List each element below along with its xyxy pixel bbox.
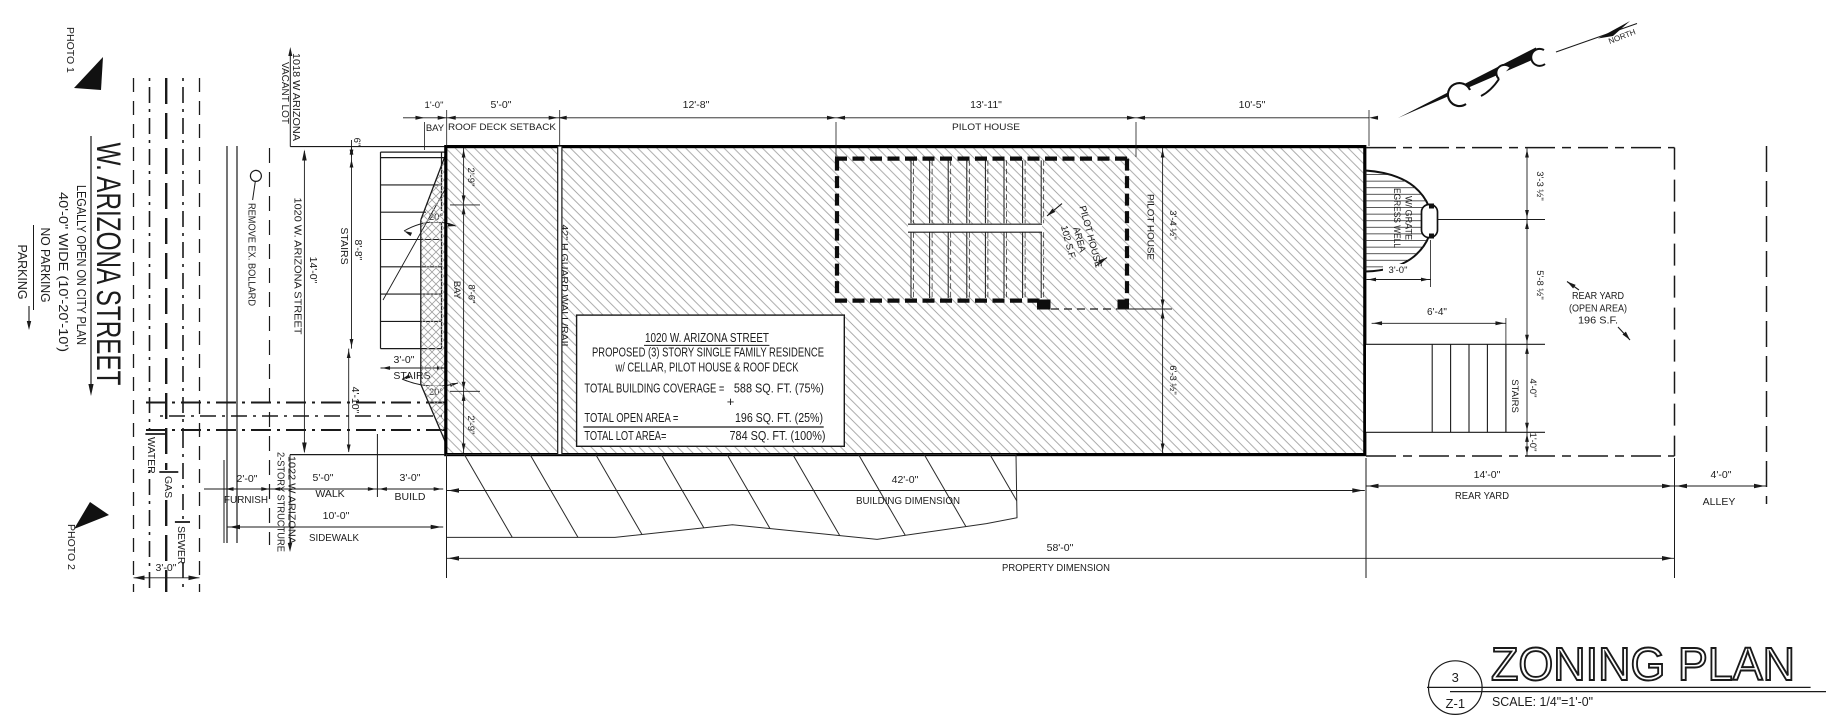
svg-text:PROPERTY DIMENSION: PROPERTY DIMENSION: [1002, 562, 1110, 574]
svg-text:SCALE: 1/4"=1'-0": SCALE: 1/4"=1'-0": [1492, 695, 1593, 709]
svg-text:2'-9": 2'-9": [465, 416, 476, 435]
svg-text:BUILD: BUILD: [395, 491, 426, 503]
svg-text:10'-5": 10'-5": [1239, 99, 1266, 111]
svg-text:588 SQ. FT. (75%): 588 SQ. FT. (75%): [734, 381, 824, 396]
svg-text:W. ARIZONA STREET: W. ARIZONA STREET: [89, 143, 127, 386]
svg-text:196 SQ. FT. (25%): 196 SQ. FT. (25%): [735, 410, 823, 425]
svg-text:13'-11": 13'-11": [970, 99, 1002, 111]
svg-text:1'-0": 1'-0": [1527, 433, 1538, 452]
svg-text:PILOT HOUSE: PILOT HOUSE: [952, 122, 1020, 133]
svg-text:BAY: BAY: [451, 281, 462, 300]
svg-text:5'-8 ½": 5'-8 ½": [1534, 270, 1545, 299]
svg-text:3'-4 ½": 3'-4 ½": [1167, 210, 1178, 239]
svg-text:2'-9": 2'-9": [465, 168, 476, 187]
svg-text:GAS: GAS: [162, 476, 174, 498]
svg-text:+: +: [727, 394, 735, 409]
svg-text:REAR YARD: REAR YARD: [1455, 490, 1509, 502]
svg-text:W/ GRATE: W/ GRATE: [1404, 196, 1414, 240]
svg-text:42" H GUARD WALL/RAIL: 42" H GUARD WALL/RAIL: [559, 225, 570, 350]
svg-text:14'-0": 14'-0": [1474, 469, 1501, 481]
svg-text:SIDEWALK: SIDEWALK: [309, 532, 359, 544]
svg-text:6'-4": 6'-4": [1427, 307, 1447, 318]
svg-text:8'-6": 8'-6": [466, 285, 477, 304]
svg-text:12'-8": 12'-8": [683, 99, 710, 111]
svg-text:3'-0": 3'-0": [394, 354, 415, 366]
svg-text:6": 6": [351, 138, 362, 147]
svg-text:(OPEN AREA): (OPEN AREA): [1569, 303, 1627, 315]
svg-text:ZONING PLAN: ZONING PLAN: [1491, 638, 1795, 690]
svg-text:PARKING: PARKING: [15, 245, 29, 300]
svg-text:2'-0": 2'-0": [237, 473, 258, 485]
svg-text:3'-0": 3'-0": [156, 562, 177, 574]
svg-text:TOTAL LOT AREA=: TOTAL LOT AREA=: [584, 428, 666, 443]
svg-text:PROPOSED (3) STORY SINGLE FAMI: PROPOSED (3) STORY SINGLE FAMILY RESIDEN…: [592, 345, 824, 360]
svg-text:1020 W. ARIZONA STREET: 1020 W. ARIZONA STREET: [645, 330, 769, 345]
svg-text:WALK: WALK: [315, 488, 344, 500]
svg-text:PHOTO 2: PHOTO 2: [65, 524, 77, 570]
svg-text:3'-0": 3'-0": [400, 472, 421, 484]
svg-text:14'-0": 14'-0": [307, 257, 319, 284]
svg-text:TOTAL OPEN AREA =: TOTAL OPEN AREA =: [584, 410, 678, 425]
svg-text:40'-0" WIDE (10'-20'-10'): 40'-0" WIDE (10'-20'-10'): [56, 192, 70, 352]
svg-text:5'-0": 5'-0": [491, 99, 512, 111]
svg-text:TOTAL BUILDING COVERAGE =: TOTAL BUILDING COVERAGE =: [584, 381, 724, 396]
svg-text:REMOVE EX. BOLLARD: REMOVE EX. BOLLARD: [246, 203, 258, 306]
svg-text:1022 W ARIZONA: 1022 W ARIZONA: [286, 456, 297, 544]
svg-text:VACANT LOT: VACANT LOT: [279, 62, 291, 125]
svg-text:8'-8": 8'-8": [352, 240, 364, 261]
svg-text:LEGALLY OPEN ON CITY PLAN: LEGALLY OPEN ON CITY PLAN: [74, 185, 88, 345]
svg-text:58'-0": 58'-0": [1047, 542, 1074, 554]
svg-text:42'-0": 42'-0": [892, 474, 919, 486]
svg-text:EGRESS WELL: EGRESS WELL: [1392, 188, 1402, 248]
svg-text:ALLEY: ALLEY: [1703, 496, 1736, 508]
svg-text:PILOT HOUSE: PILOT HOUSE: [1145, 194, 1156, 260]
svg-text:w/ CELLAR, PILOT HOUSE & ROOF: w/ CELLAR, PILOT HOUSE & ROOF DECK: [615, 359, 799, 374]
svg-text:4'-0": 4'-0": [1527, 379, 1538, 398]
svg-text:5'-0": 5'-0": [313, 472, 334, 484]
svg-text:6'-3 ½": 6'-3 ½": [1167, 365, 1178, 394]
svg-text:REAR YARD: REAR YARD: [1572, 290, 1624, 302]
svg-text:4'-0": 4'-0": [1711, 469, 1732, 481]
svg-text:BUILDING DIMENSION: BUILDING DIMENSION: [856, 495, 960, 507]
svg-text:STAIRS: STAIRS: [1509, 379, 1520, 413]
svg-text:784 SQ. FT. (100%): 784 SQ. FT. (100%): [730, 428, 826, 443]
svg-text:PHOTO 1: PHOTO 1: [64, 27, 76, 73]
svg-text:ROOF DECK SETBACK: ROOF DECK SETBACK: [448, 122, 557, 133]
svg-text:BAY: BAY: [426, 123, 445, 134]
svg-text:10'-0": 10'-0": [323, 510, 350, 522]
svg-text:3'-0": 3'-0": [1389, 265, 1408, 276]
svg-text:Z-1: Z-1: [1446, 696, 1466, 711]
svg-text:NO PARKING: NO PARKING: [38, 228, 52, 303]
svg-text:WATER: WATER: [145, 437, 157, 474]
svg-text:1'-0": 1'-0": [425, 100, 444, 111]
svg-text:SEWER: SEWER: [175, 526, 187, 565]
svg-text:STAIRS: STAIRS: [338, 227, 350, 264]
svg-text:1020 W. ARIZONA STREET: 1020 W. ARIZONA STREET: [292, 198, 304, 336]
svg-text:4'-10": 4'-10": [349, 387, 361, 414]
svg-text:196 S.F.: 196 S.F.: [1578, 315, 1618, 327]
svg-text:2-STORY STRUCTURE: 2-STORY STRUCTURE: [275, 452, 286, 552]
svg-text:3: 3: [1452, 670, 1459, 685]
svg-text:3'-3 ½": 3'-3 ½": [1534, 171, 1545, 200]
svg-text:FURNISH: FURNISH: [224, 494, 268, 506]
